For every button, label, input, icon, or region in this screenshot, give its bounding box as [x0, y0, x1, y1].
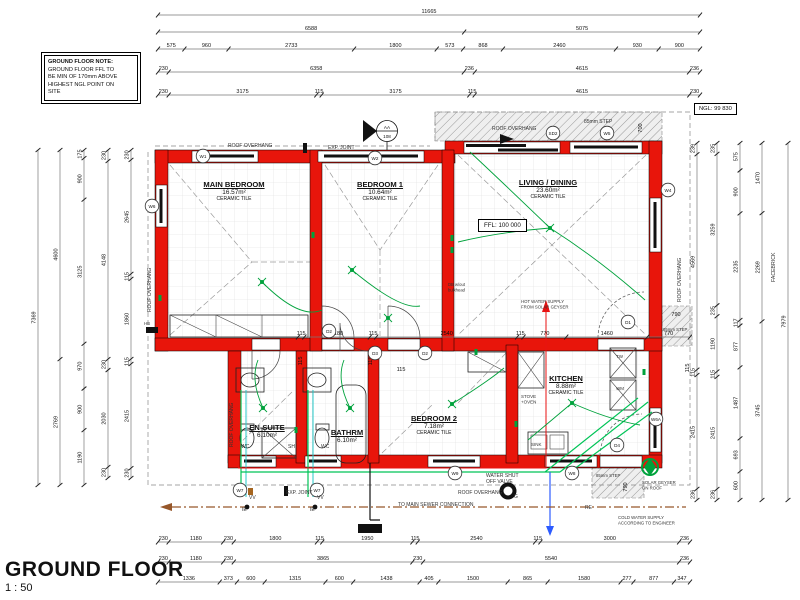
dim-label: 770: [540, 331, 549, 337]
door-opening: [600, 456, 642, 467]
dim-label: 373: [224, 576, 233, 582]
dim-label: 1950: [361, 536, 373, 542]
dim-label: 3259: [711, 223, 717, 235]
dim-label: 1487: [734, 397, 740, 409]
dim-label: 3175: [236, 89, 248, 95]
dim-label: 236: [691, 490, 697, 499]
marker-label: SD2: [549, 131, 558, 136]
annotation: WM: [616, 386, 624, 391]
dim-label: 277: [622, 576, 631, 582]
room-finish: CERAMIC TILE: [203, 196, 264, 202]
room-finish: CERAMIC TILE: [519, 194, 577, 200]
dim-label: 236: [690, 66, 699, 72]
marker-label: W1: [200, 154, 207, 159]
room-label-bedroom-1: BEDROOM 110.64m²CERAMIC TILE: [357, 180, 403, 202]
dim-label: 4615: [576, 89, 588, 95]
dim-label: 6588: [305, 26, 317, 32]
dim-label: 1800: [389, 43, 401, 49]
window-w4: [650, 198, 661, 252]
dim-label: 1190: [78, 452, 84, 464]
dim-label: 6358: [310, 66, 322, 72]
dim-label: 230: [159, 536, 168, 542]
annotation: 85mm STEP: [596, 473, 620, 478]
dim-label: 575: [734, 152, 740, 161]
dim-label: 3175: [389, 89, 401, 95]
dim-label: 4569: [691, 256, 697, 268]
dim-label: 693: [734, 450, 740, 459]
dim-label: 2540: [441, 331, 453, 337]
dim-label: 115: [125, 357, 131, 366]
room-label-bedroom-2: BEDROOM 27.18m²CERAMIC TILE: [411, 414, 457, 436]
dim-label: 1438: [380, 576, 392, 582]
annotation: ROOF OVERHANG: [458, 490, 503, 496]
dim-label: 115: [297, 331, 306, 337]
annotation: RE: [585, 505, 593, 511]
room-area: 7.18m²: [411, 423, 457, 430]
dim-label: 115: [397, 367, 406, 373]
annotation: ACCORDING TO ENGINEER: [618, 521, 675, 526]
note-line: BE MIN OF 170mm ABOVE: [48, 74, 134, 82]
dim-label: 236: [711, 490, 717, 499]
annotation: SOLAR GEYSER: [642, 480, 676, 485]
room-area: 6.10m²: [331, 437, 363, 444]
marker-label: W5: [604, 131, 611, 136]
ffl-level-label: FFL: 100 000: [478, 219, 527, 232]
note-line: GROUND FLOOR FFL TO: [48, 67, 134, 75]
note-line: GROUND FLOOR NOTE:: [48, 59, 134, 67]
dim-label: 970: [78, 362, 84, 371]
room-finish: CERAMIC TILE: [357, 196, 403, 202]
dim-label: 600: [335, 576, 344, 582]
annotation: bulkhead: [448, 287, 466, 292]
svg-text:AA: AA: [384, 125, 391, 130]
dim-label: 1190: [711, 338, 717, 350]
annotation: TO MAIN SEWER CONNECTION: [398, 502, 474, 508]
dim-label: 7369: [32, 311, 38, 323]
note-line: SITE: [48, 89, 134, 97]
circle: [386, 316, 390, 320]
circle: [350, 268, 354, 272]
annotation: FROM SOLAR GEYSER: [521, 305, 569, 310]
dim-label: 2269: [756, 261, 762, 273]
dim-label: 7979: [782, 315, 788, 327]
socket-icon: [451, 235, 454, 241]
dim-label: 575: [167, 43, 176, 49]
room-name: BATHRM: [331, 428, 363, 437]
dim-label: 230: [159, 89, 168, 95]
dim-label: 405: [424, 576, 433, 582]
entry-step: [358, 524, 382, 533]
dim-label: 115: [691, 368, 697, 377]
dim-label: 230: [102, 151, 108, 160]
room-area: 23.60m²: [519, 187, 577, 194]
socket-icon: [475, 349, 478, 355]
window-w9: [428, 456, 480, 467]
dim-label: 4615: [576, 66, 588, 72]
dim-label: 1336: [183, 576, 195, 582]
dim-label: 1470: [756, 172, 762, 184]
dim-label: 115: [685, 364, 691, 373]
dim-label: 2415: [711, 427, 717, 439]
dim-label: 115: [315, 536, 324, 542]
socket-icon: [159, 295, 162, 301]
dim-label: 1180: [190, 556, 202, 562]
dim-label: 239: [691, 144, 697, 153]
vent-pipe: [248, 488, 253, 495]
dim-label: 1500: [467, 576, 479, 582]
annotation: WC: [321, 444, 330, 450]
annotation: ROOF OVERHANG: [147, 267, 153, 312]
exp-joint-block: [303, 143, 307, 153]
title-block: GROUND FLOOR 1 : 50: [5, 558, 184, 594]
dim-label: 960: [202, 43, 211, 49]
socket-icon: [295, 427, 298, 433]
drawing-scale: 1 : 50: [5, 582, 184, 594]
marker-label: W6: [149, 204, 156, 209]
room-area: 6.10m²: [249, 432, 284, 439]
dim-label: 1460: [601, 331, 613, 337]
dim-label: 115: [298, 357, 304, 366]
dim-label: 1580: [578, 576, 590, 582]
room-area: 16.57m²: [203, 189, 264, 196]
dim-label: 236: [680, 556, 689, 562]
door-opening: [322, 339, 354, 350]
annotation: VV: [249, 495, 256, 501]
section-marker: AA 108: [363, 120, 398, 150]
annotation: WATER SHUT: [486, 473, 519, 479]
hose-bib: [146, 327, 158, 333]
marker-label: D1: [625, 320, 631, 325]
door-opening: [252, 339, 280, 350]
dim-label: 600: [246, 576, 255, 582]
annotation: EXP. JOINT: [328, 145, 355, 151]
marker-label: W7: [314, 488, 321, 493]
circle: [348, 406, 352, 410]
dim-label: 930: [633, 43, 642, 49]
note-line: HIGHEST NGL POINT ON: [48, 82, 134, 90]
dim-label: 230: [102, 360, 108, 369]
room-label-bathrm: BATHRM6.10m²: [331, 428, 363, 444]
circle: [261, 406, 265, 410]
floor-plan-sheet: AA 108 116656588507557596027331800573868…: [0, 0, 800, 600]
dim-label: 4148: [102, 254, 108, 266]
annotation: EXP. JOINT: [286, 490, 313, 496]
dim-label: 115: [411, 536, 420, 542]
dim-label: 2030: [102, 412, 108, 424]
room-name: MAIN BEDROOM: [203, 180, 264, 189]
dim-label: 2415: [691, 426, 697, 438]
dim-label: 347: [677, 576, 686, 582]
dim-label: 2460: [553, 43, 565, 49]
annotation: SINK: [531, 442, 542, 447]
window-w5: [570, 142, 642, 153]
circle: [548, 226, 552, 230]
window-w7b: [305, 456, 341, 467]
room-name: KITCHEN: [549, 374, 584, 383]
annotation: +OVEN: [521, 400, 536, 405]
annotation: SH: [288, 444, 295, 450]
dim-label: 1180: [190, 536, 202, 542]
annotation: STOVE: [521, 394, 536, 399]
dim-label: 236: [465, 66, 474, 72]
dim-label: 900: [675, 43, 684, 49]
room-label-living-dining: LIVING / DINING23.60m²CERAMIC TILE: [519, 178, 577, 200]
socket-icon: [451, 247, 454, 253]
dim-label: 2769: [54, 416, 60, 428]
dim-label: 700: [638, 123, 644, 132]
dim-label: 1860: [125, 313, 131, 325]
dim-label: 900: [78, 405, 84, 414]
annotation: DB w/out: [448, 282, 466, 287]
dim-label: 790: [671, 312, 680, 318]
circle: [260, 280, 264, 284]
room-name: EN-SUITE: [249, 423, 284, 432]
dim-label: 3865: [317, 556, 329, 562]
dim-label: 236: [680, 536, 689, 542]
annotation: ROOF OVERHANG: [492, 126, 537, 132]
dim-label: 3125: [78, 266, 84, 278]
dim-label: 230: [413, 556, 422, 562]
room-name: LIVING / DINING: [519, 178, 577, 187]
ground-floor-note: GROUND FLOOR NOTE: GROUND FLOOR FFL TO B…: [44, 55, 138, 101]
dim-label: 900: [734, 187, 740, 196]
marker-label: W8: [569, 471, 576, 476]
dim-label: 1800: [269, 536, 281, 542]
dim-label: 115: [468, 89, 477, 95]
room-finish: CERAMIC TILE: [549, 390, 584, 396]
annotation: WC: [241, 444, 250, 450]
dim-label: 900: [78, 174, 84, 183]
door-opening: [388, 339, 420, 350]
dim-label: 117: [734, 318, 740, 327]
room-name: BEDROOM 1: [357, 180, 403, 189]
dim-label: 868: [478, 43, 487, 49]
annotation: ROOF OVERHANG: [229, 402, 235, 447]
dim-label: 4600: [54, 248, 60, 260]
annotation: ROOF OVERHANG: [228, 143, 273, 149]
marker-label: D3: [372, 351, 378, 356]
dim-label: 235: [711, 306, 717, 315]
room-label-en-suite: EN-SUITE6.10m²: [249, 423, 284, 439]
annotation: VV: [317, 495, 324, 501]
dim-label: 230: [224, 536, 233, 542]
dim-label: 1315: [289, 576, 301, 582]
annotation: 85mm STEP: [584, 119, 613, 125]
annotation: G: [514, 494, 518, 500]
dim-label: 790: [623, 482, 629, 491]
dim-label: 235: [711, 144, 717, 153]
dim-label: 230: [159, 66, 168, 72]
annotation: TW: [616, 354, 624, 359]
dim-label: 230: [125, 468, 131, 477]
marker-label: D4: [614, 443, 620, 448]
dim-label: 5075: [576, 26, 588, 32]
dim-label: 2645: [125, 211, 131, 223]
ngl-level-label: NGL: 99 830: [694, 103, 737, 115]
annotation: OFF VALVE: [486, 479, 513, 485]
dim-label: 877: [734, 342, 740, 351]
room-label-kitchen: KITCHEN8.88m²CERAMIC TILE: [549, 374, 584, 396]
dim-label: 2235: [734, 261, 740, 273]
dim-label: 865: [523, 576, 532, 582]
dim-label: 2733: [285, 43, 297, 49]
annotation: HOT WATER SUPPLY: [521, 299, 564, 304]
gully: [502, 485, 515, 498]
drawing-title: GROUND FLOOR: [5, 558, 184, 582]
dim-label: 573: [445, 43, 454, 49]
circle: [570, 401, 574, 405]
sliding-door-sd2: [464, 142, 560, 153]
dim-label: 230: [102, 468, 108, 477]
dim-label: 115: [516, 331, 525, 337]
dim-label: 175: [78, 149, 84, 158]
dim-label: 5540: [545, 556, 557, 562]
room-area: 10.64m²: [357, 189, 403, 196]
dim-label: 2415: [125, 410, 131, 422]
dim-label: 3745: [756, 405, 762, 417]
socket-icon: [515, 421, 518, 427]
annotation: ON ROOF: [642, 486, 662, 491]
annotation: 85mm STEP: [663, 327, 687, 332]
marker-label: W9: [452, 471, 459, 476]
marker-label: D2: [422, 351, 428, 356]
dim-label: 3000: [604, 536, 616, 542]
circle: [450, 402, 454, 406]
socket-icon: [643, 369, 646, 375]
marker-label: W4: [665, 188, 672, 193]
dim-label: 115: [711, 370, 717, 379]
room-name: BEDROOM 2: [411, 414, 457, 423]
dim-label: 600: [734, 481, 740, 490]
annotation: FACEBRICK: [771, 252, 777, 282]
svg-text:108: 108: [383, 134, 391, 139]
marker-label: W2: [372, 156, 379, 161]
dim-label: 230: [690, 89, 699, 95]
marker-label: D2: [326, 329, 332, 334]
dim-label: 230: [125, 150, 131, 159]
room-label-main-bedroom: MAIN BEDROOM16.57m²CERAMIC TILE: [203, 180, 264, 202]
dim-label: 115: [125, 272, 131, 281]
socket-icon: [312, 232, 315, 238]
dim-label: 11665: [422, 9, 437, 15]
annotation: HB: [144, 321, 150, 326]
room-finish: CERAMIC TILE: [411, 430, 457, 436]
dim-label: 877: [649, 576, 658, 582]
dim-label: 115: [369, 331, 378, 337]
marker-label: W7: [237, 488, 244, 493]
room-area: 8.88m²: [549, 383, 584, 390]
annotation: ROOF OVERHANG: [677, 257, 683, 302]
dim-label: 230: [224, 556, 233, 562]
dim-label: 115: [533, 536, 542, 542]
annotation: COLD WATER SUPPLY: [618, 515, 664, 520]
dim-label: 115: [315, 89, 324, 95]
annotation: IE: [310, 507, 315, 513]
marker-label: W6A: [651, 417, 662, 422]
dim-label: 2540: [470, 536, 482, 542]
annotation: IE: [242, 507, 247, 513]
solar-geyser-symbol: [642, 458, 658, 476]
